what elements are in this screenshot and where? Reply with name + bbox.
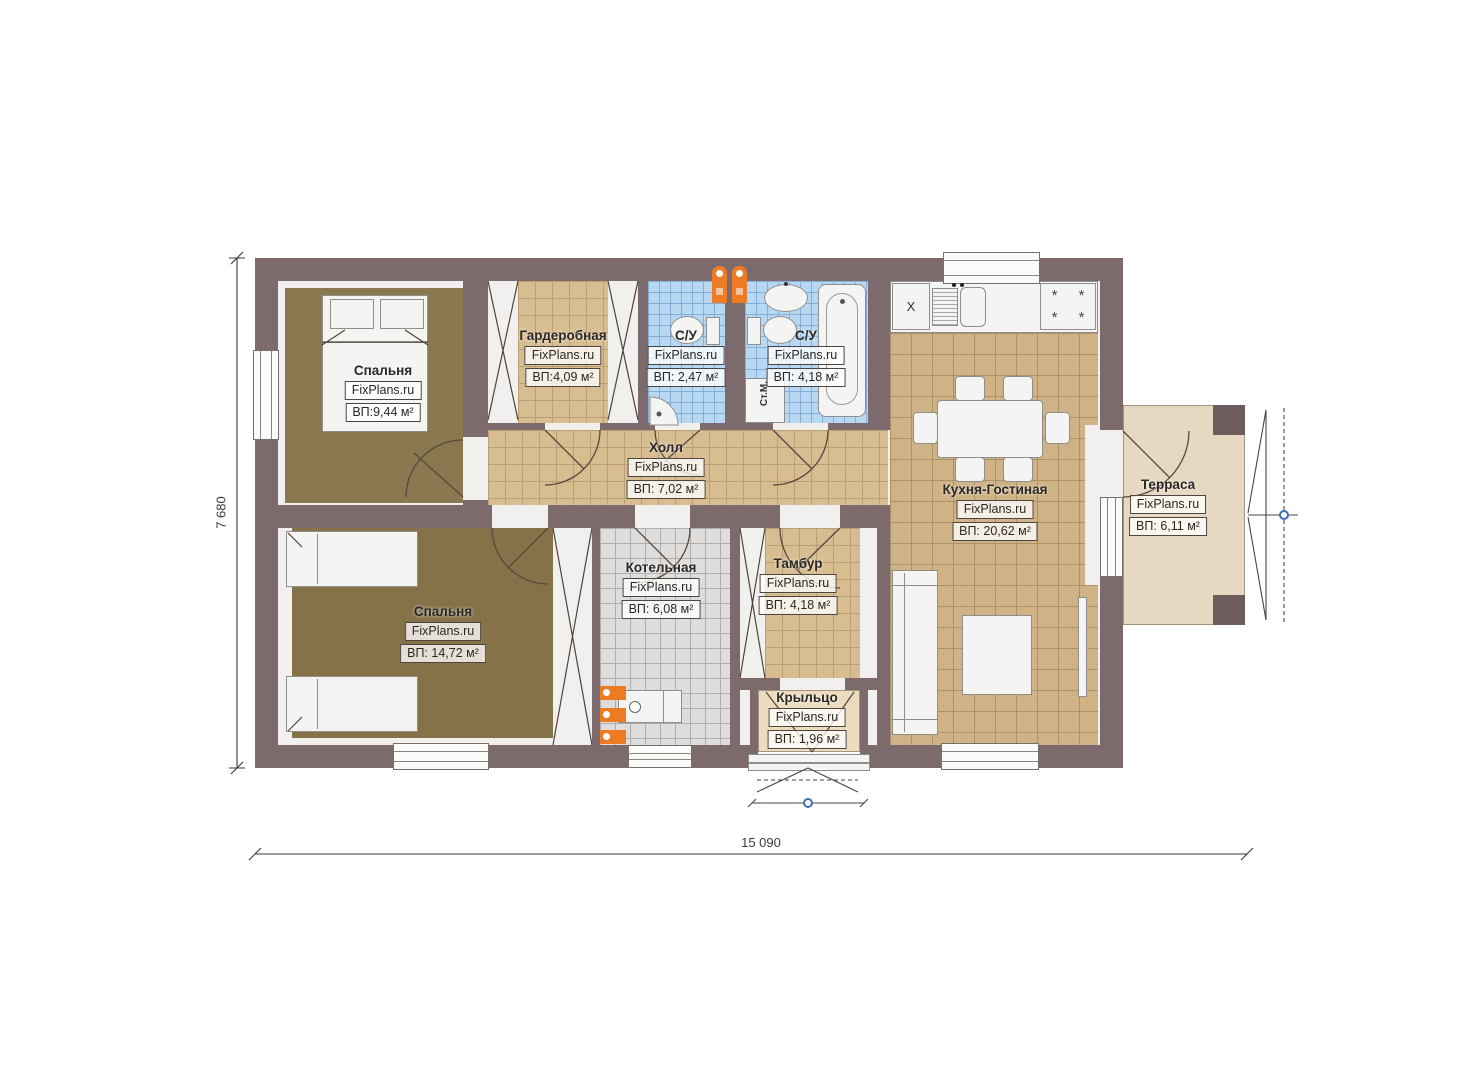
sofa: [892, 570, 938, 735]
sink-drainboard: [932, 288, 958, 326]
boiler-divider: [663, 691, 664, 722]
watermark: FixPlans.ru: [769, 708, 846, 727]
watermark: FixPlans.ru: [648, 346, 725, 365]
boiler-unit: [618, 690, 682, 723]
room-area: ВП: 4,18 м²: [759, 596, 838, 615]
dimension-height: 7 680: [214, 473, 229, 553]
label-bathroom1: С/У FixPlans.ru ВП: 2,47 м²: [647, 328, 726, 387]
watermark: FixPlans.ru: [623, 578, 700, 597]
wall-bottom-3: [690, 745, 752, 768]
porch-step-1: [748, 754, 870, 763]
vent-pipe-icon: [732, 266, 747, 303]
wall-thin-2: [600, 423, 655, 430]
burner-icon: *: [1068, 284, 1095, 307]
faucet-dot: [784, 282, 788, 286]
chair: [1045, 412, 1070, 444]
wall-hall-south-3: [690, 505, 780, 528]
room-area: ВП: 6,08 м²: [622, 600, 701, 619]
pillow-divider: [317, 679, 318, 729]
label-bedroom2: Спальня FixPlans.ru ВП: 14,72 м²: [400, 604, 486, 663]
room-title: С/У: [647, 328, 726, 343]
wall-hall-south-2: [548, 505, 635, 528]
fridge-label: X: [907, 299, 916, 314]
wall-boiler-vestibule: [730, 528, 740, 745]
room-title: Котельная: [622, 560, 701, 575]
pillow: [330, 299, 374, 329]
watermark: FixPlans.ru: [525, 346, 602, 365]
room-area: ВП: 6,11 м²: [1129, 517, 1207, 536]
boiler-dial: [629, 701, 641, 713]
room-title: Холл: [627, 440, 706, 455]
wall-bedroom2-boiler: [592, 528, 600, 745]
room-title: Кухня-Гостиная: [943, 482, 1048, 497]
kitchen-sink: [960, 287, 986, 327]
wall-bottom-5: [1037, 745, 1123, 768]
gas-vent-icon: [600, 708, 626, 722]
wall-left-upper: [255, 281, 278, 350]
wall-top-right: [1038, 258, 1123, 281]
marker-dot: [804, 799, 812, 807]
watermark: FixPlans.ru: [628, 458, 705, 477]
dimension-width: 15 090: [711, 835, 811, 850]
single-bed-top: [286, 531, 418, 587]
dining-table: [937, 400, 1043, 458]
room-title: Тамбур: [759, 556, 838, 571]
room-title: Спальня: [345, 363, 422, 378]
label-bathroom2: С/У FixPlans.ru ВП: 4,18 м²: [767, 328, 846, 387]
burner-icon: *: [1041, 284, 1068, 307]
room-area: ВП: 20,62 м²: [952, 522, 1038, 541]
floor-plan-canvas: Ст.М. X * * * *: [0, 0, 1474, 1080]
sofa-back-line: [904, 573, 905, 732]
wall-thin-4: [828, 423, 868, 430]
wall-bedroom1-right-a: [463, 281, 488, 437]
watermark: FixPlans.ru: [957, 500, 1034, 519]
window-top-kitchen: [943, 252, 1040, 284]
label-wardrobe: Гардеробная FixPlans.ru ВП:4,09 м²: [519, 328, 606, 387]
blanket-line: [323, 342, 427, 343]
room-title: С/У: [767, 328, 846, 343]
window-bottom-boiler: [628, 745, 692, 768]
pillow-divider: [317, 534, 318, 584]
kitchen-window-strip: [1085, 425, 1100, 585]
vent-pipe-icon: [712, 266, 727, 303]
room-title: Гардеробная: [519, 328, 606, 343]
washbasin: [764, 284, 808, 312]
burner-icon: *: [1068, 307, 1095, 330]
pillow: [380, 299, 424, 329]
wall-right-upper: [1100, 281, 1123, 430]
porch-wall-left: [750, 690, 758, 754]
label-terrace: Терраса FixPlans.ru ВП: 6,11 м²: [1129, 477, 1207, 536]
marker-dot: [1280, 511, 1288, 519]
room-area: ВП: 7,02 м²: [627, 480, 706, 499]
gas-vent-icon: [600, 730, 626, 744]
wall-vestibule-kitchen: [877, 505, 890, 745]
watermark: FixPlans.ru: [768, 346, 845, 365]
label-porch: Крыльцо FixPlans.ru ВП: 1,96 м²: [768, 690, 847, 749]
wall-top-left: [255, 258, 945, 281]
chair: [955, 457, 985, 482]
wall-thin-3: [700, 423, 773, 430]
toilet-tank: [747, 317, 761, 345]
wall-vestibule-south-2: [845, 678, 877, 690]
label-hall: Холл FixPlans.ru ВП: 7,02 м²: [627, 440, 706, 499]
wall-bottom-1: [255, 745, 395, 768]
window-bottom-bedroom2: [393, 743, 489, 770]
porch-gable-lines: [757, 768, 858, 792]
wall-bath2-kitchen: [868, 281, 890, 430]
room-area: ВП: 4,18 м²: [767, 368, 846, 387]
room-area: ВП:9,44 м²: [345, 403, 420, 422]
terrace-post-top: [1213, 405, 1245, 435]
terrace-door-opening: [1100, 430, 1123, 497]
terrace-stair-lines: [1248, 410, 1266, 620]
label-boiler: Котельная FixPlans.ru ВП: 6,08 м²: [622, 560, 701, 619]
chair: [913, 412, 938, 444]
terrace-post-bottom: [1213, 595, 1245, 625]
stove: * * * *: [1040, 283, 1096, 330]
wall-bottom-4: [866, 745, 943, 768]
dim-line-vertical: [229, 252, 245, 774]
chair: [1003, 457, 1033, 482]
coffee-table: [962, 615, 1032, 695]
room-area: ВП: 14,72 м²: [400, 644, 486, 663]
room-title: Терраса: [1129, 477, 1207, 492]
window-left-bedroom1: [253, 350, 279, 440]
wall-left-lower: [255, 440, 278, 745]
watermark: FixPlans.ru: [760, 574, 837, 593]
room-title: Крыльцо: [768, 690, 847, 705]
chair: [955, 376, 985, 401]
porch-step-2: [748, 763, 870, 771]
radiator: [1078, 597, 1087, 697]
burner-icon: *: [1041, 307, 1068, 330]
gas-vent-icon: [600, 686, 626, 700]
wall-thin-1: [488, 423, 545, 430]
label-bedroom1: Спальня FixPlans.ru ВП:9,44 м²: [345, 363, 422, 422]
fridge: X: [892, 283, 930, 330]
room-title: Спальня: [400, 604, 486, 619]
label-vestibule: Тамбур FixPlans.ru ВП: 4,18 м²: [759, 556, 838, 615]
faucet-dot: [960, 283, 964, 287]
room-area: ВП:4,09 м²: [525, 368, 600, 387]
label-kitchen-living: Кухня-Гостиная FixPlans.ru ВП: 20,62 м²: [943, 482, 1048, 541]
wall-vestibule-south-1: [740, 678, 780, 690]
wall-hall-south-1: [278, 505, 492, 528]
porch-wall-right: [860, 690, 868, 754]
watermark: FixPlans.ru: [1130, 495, 1207, 514]
room-area: ВП: 2,47 м²: [647, 368, 726, 387]
porch-dim-line: [748, 799, 868, 807]
watermark: FixPlans.ru: [345, 381, 422, 400]
sofa-armrest-line: [893, 719, 937, 720]
sofa-armrest-line: [893, 585, 937, 586]
chair: [1003, 376, 1033, 401]
window-right-living: [1100, 497, 1123, 577]
bathtub-drain: [840, 299, 845, 304]
wall-bottom-2: [487, 745, 630, 768]
watermark: FixPlans.ru: [405, 622, 482, 641]
window-bottom-living: [941, 743, 1039, 770]
faucet-dot: [952, 283, 956, 287]
wall-right-lower: [1100, 577, 1123, 745]
room-area: ВП: 1,96 м²: [768, 730, 847, 749]
single-bed-bottom: [286, 676, 418, 732]
